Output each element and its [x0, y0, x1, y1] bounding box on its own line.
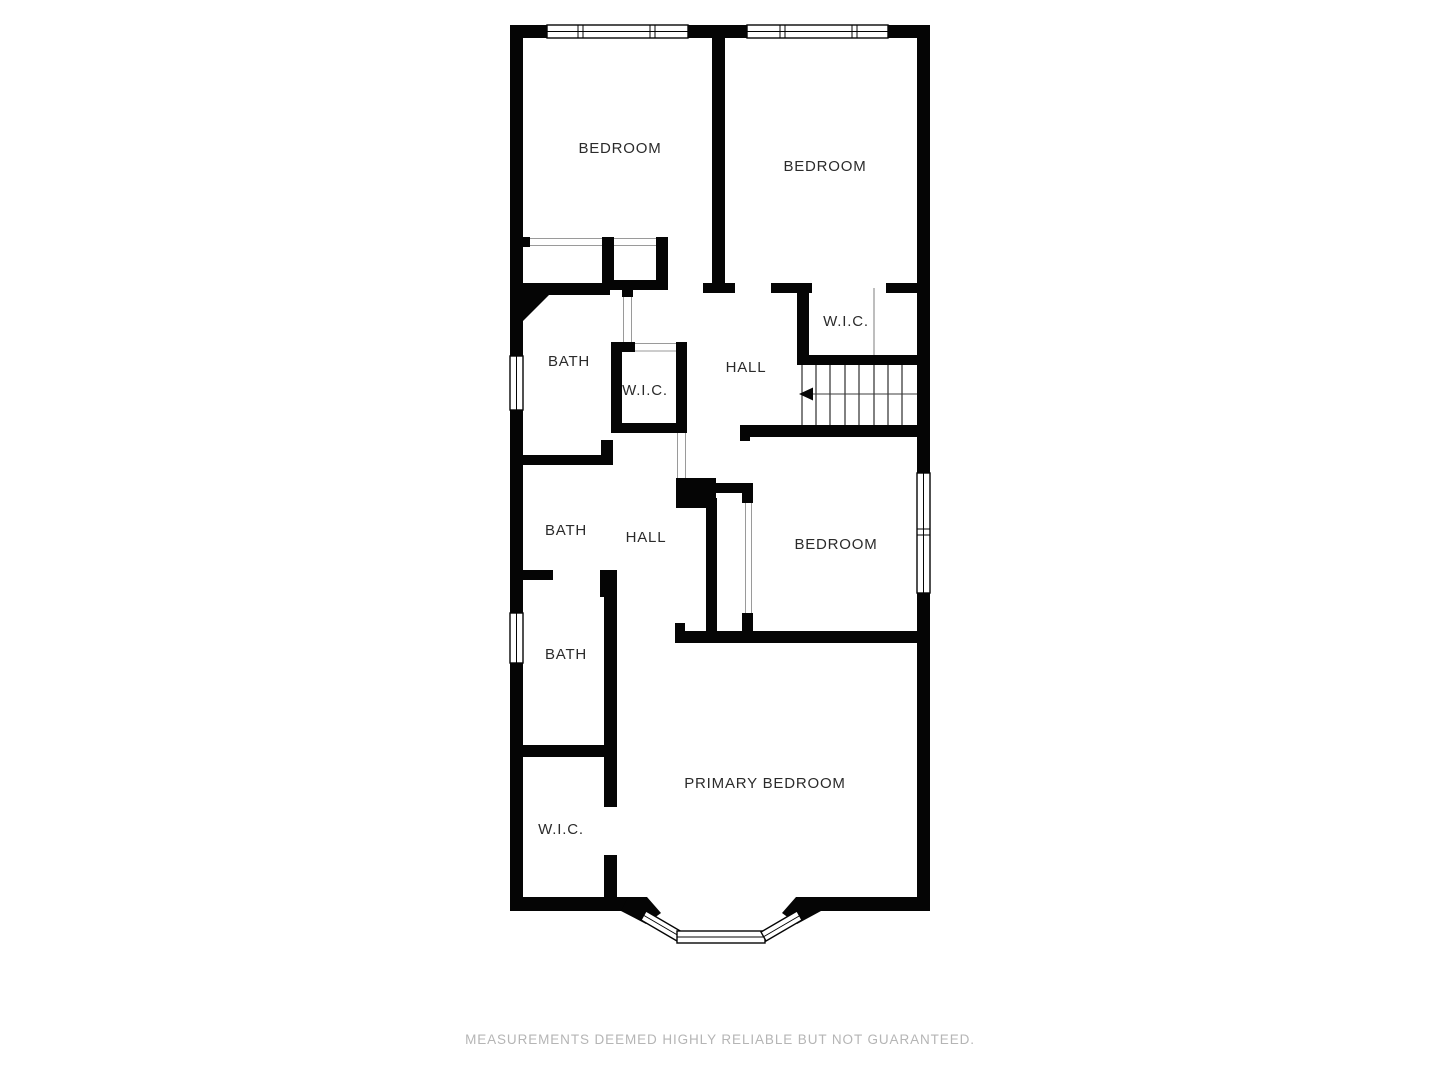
disclaimer-text: MEASUREMENTS DEEMED HIGHLY RELIABLE BUT …	[465, 1032, 975, 1047]
wall-segment	[712, 38, 725, 283]
wall-segment	[510, 745, 610, 757]
wall-segment	[604, 855, 617, 905]
wall-segment	[740, 425, 930, 437]
room-label-hall-upper: HALL	[726, 359, 767, 376]
wall-segment	[740, 425, 750, 441]
wall-segment	[601, 440, 613, 465]
wall-segment	[888, 25, 930, 38]
wall-segment	[703, 283, 735, 293]
wall-segment	[797, 355, 930, 365]
right-window-bedroom	[917, 473, 930, 593]
wall-segment	[917, 25, 930, 911]
stair-direction-arrow	[799, 388, 917, 401]
wall-segment	[611, 342, 622, 433]
wall-segment	[688, 25, 747, 38]
wall-segment	[604, 570, 617, 807]
room-label-hall-lower: HALL	[626, 529, 667, 546]
wall-segment	[611, 342, 635, 352]
wall-segment	[675, 631, 920, 643]
wall-segment	[815, 897, 930, 911]
window-line	[644, 916, 680, 937]
room-label-primary-bedroom: PRIMARY BEDROOM	[684, 775, 845, 792]
top-window-left	[547, 25, 688, 38]
left-window-bath-upper	[510, 356, 523, 410]
wall-segment	[706, 498, 717, 638]
room-label-wic-top-right: W.I.C.	[823, 313, 869, 330]
room-label-bath-upper: BATH	[548, 353, 590, 370]
room-label-bedroom-top-left: BEDROOM	[578, 140, 661, 157]
bay-window	[641, 911, 802, 943]
floor-plan-page: BEDROOM BEDROOM W.I.C. BATH W.I.C. HALL …	[0, 0, 1440, 1080]
wall-segment	[742, 483, 753, 503]
wall-segment	[797, 283, 809, 365]
wall-segment	[510, 25, 547, 38]
wall-segment	[510, 237, 530, 247]
wall-segment	[742, 613, 753, 633]
room-label-wic-bottom-left: W.I.C.	[538, 821, 584, 838]
left-window-bath-lower	[510, 613, 523, 663]
room-label-bedroom-top-right: BEDROOM	[783, 158, 866, 175]
window-line	[764, 916, 800, 937]
wall-segment	[675, 623, 685, 631]
arrow-head	[799, 388, 813, 401]
floor-plan-canvas: BEDROOM BEDROOM W.I.C. BATH W.I.C. HALL …	[0, 0, 1440, 1080]
wall-segment	[510, 283, 610, 295]
wall-corner-flare	[523, 295, 549, 321]
room-label-bath-middle: BATH	[545, 522, 587, 539]
wall-segment	[510, 25, 523, 911]
room-label-bath-lower: BATH	[545, 646, 587, 663]
wall-segment	[510, 455, 613, 465]
room-label-bedroom-middle-right: BEDROOM	[794, 536, 877, 553]
wall-segment	[611, 423, 687, 433]
wall-segment	[886, 283, 930, 293]
wall-segment	[510, 570, 553, 580]
room-label-wic-middle: W.I.C.	[622, 382, 668, 399]
top-window-right	[747, 25, 888, 38]
wall-segment	[622, 288, 633, 297]
wall-segment	[676, 342, 687, 433]
wall-segment	[602, 280, 668, 290]
